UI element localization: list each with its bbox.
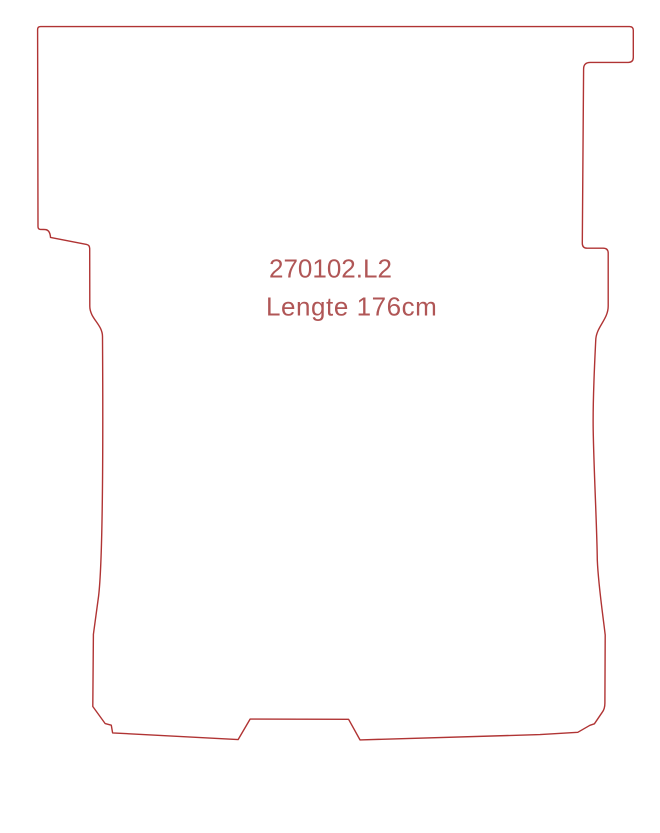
svg-text:Lengte 176cm: Lengte 176cm	[266, 291, 437, 321]
svg-text:270102.L2: 270102.L2	[269, 254, 392, 284]
